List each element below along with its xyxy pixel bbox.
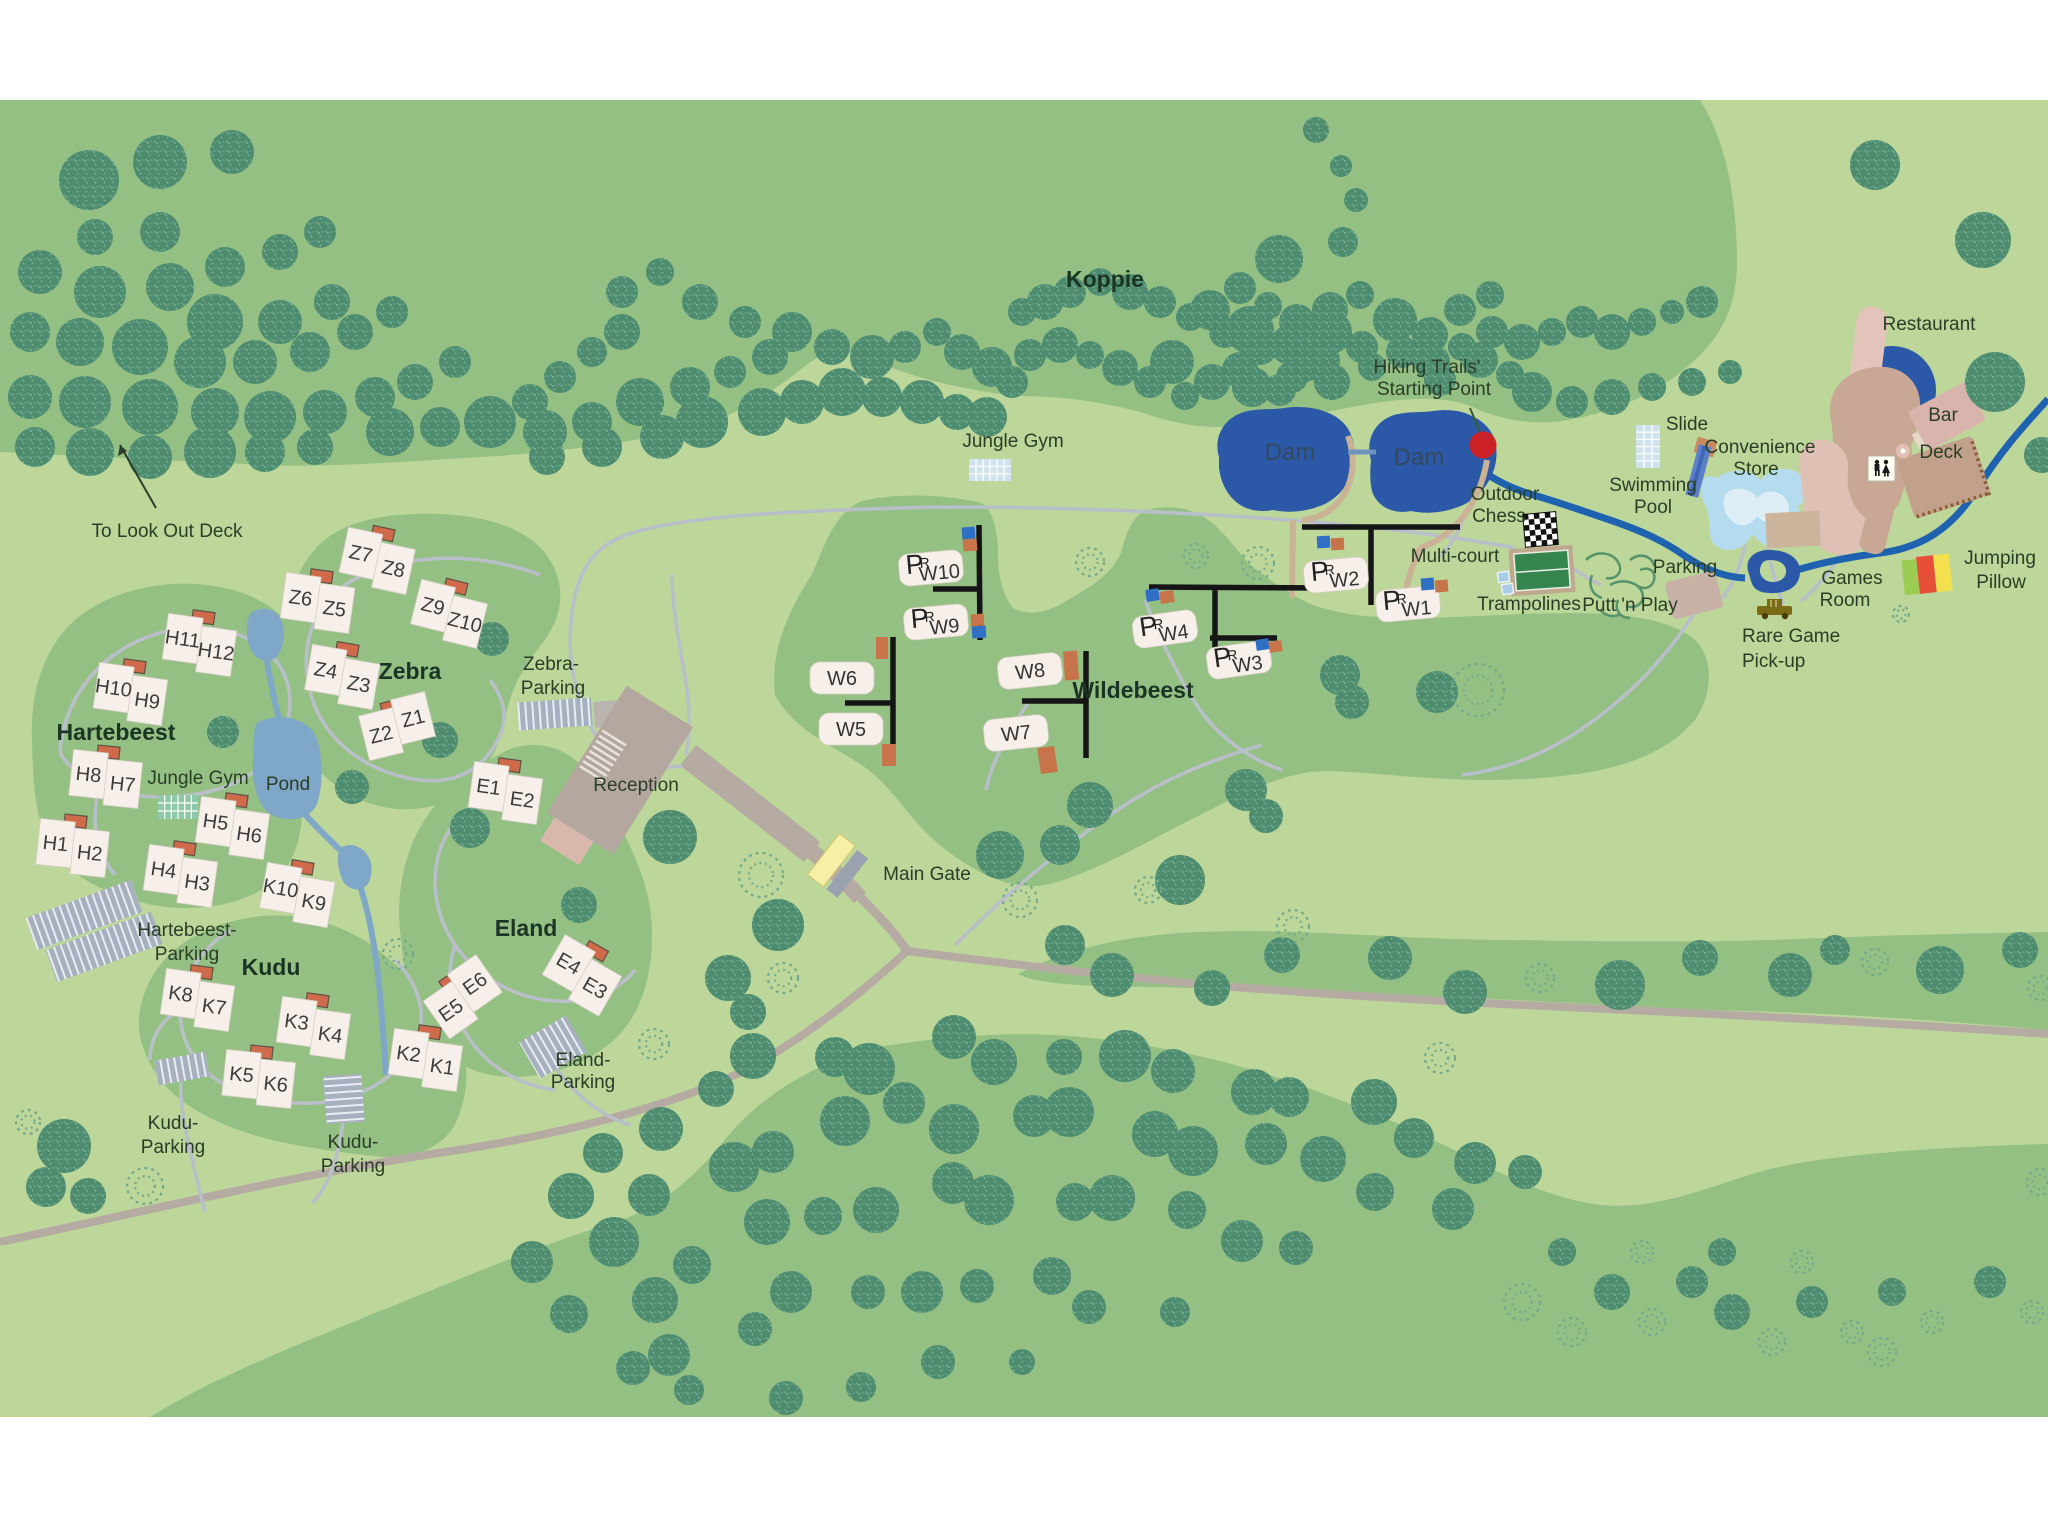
svg-text:K5: K5 (228, 1063, 255, 1087)
svg-text:H6: H6 (235, 823, 263, 848)
svg-text:Z6: Z6 (287, 586, 313, 611)
svg-text:K2: K2 (395, 1042, 422, 1067)
svg-text:H9: H9 (133, 689, 161, 714)
svg-text:H4: H4 (149, 858, 177, 883)
svg-text:Pool: Pool (1634, 497, 1672, 518)
svg-text:Parking: Parking (521, 678, 585, 699)
svg-text:Parking: Parking (141, 1137, 205, 1158)
svg-text:Outdoor: Outdoor (1471, 484, 1540, 505)
svg-text:Starting Point: Starting Point (1377, 379, 1492, 400)
svg-text:Z5: Z5 (321, 597, 347, 622)
svg-text:Zebra: Zebra (379, 658, 442, 684)
svg-text:Convenience: Convenience (1705, 437, 1816, 458)
svg-text:H8: H8 (75, 763, 103, 788)
svg-text:Parking: Parking (155, 944, 219, 965)
svg-text:H3: H3 (183, 871, 211, 896)
svg-text:Restaurant: Restaurant (1883, 314, 1977, 335)
svg-text:W3: W3 (1231, 652, 1264, 678)
svg-text:Hartebeest-: Hartebeest- (137, 920, 236, 941)
svg-text:Main Gate: Main Gate (883, 864, 971, 885)
svg-text:W5: W5 (836, 719, 866, 741)
svg-text:Swimming: Swimming (1609, 475, 1697, 496)
svg-text:Deck: Deck (1919, 442, 1963, 463)
svg-text:K1: K1 (428, 1055, 455, 1080)
svg-text:E2: E2 (508, 788, 535, 813)
svg-text:Reception: Reception (593, 775, 679, 796)
svg-text:Room: Room (1820, 590, 1871, 611)
svg-text:Parking: Parking (551, 1072, 615, 1093)
svg-text:Multi-court: Multi-court (1411, 546, 1500, 567)
svg-text:To Look Out Deck: To Look Out Deck (91, 521, 243, 542)
svg-text:K3: K3 (283, 1010, 310, 1035)
svg-text:Pick-up: Pick-up (1742, 651, 1805, 672)
svg-text:W2: W2 (1329, 568, 1361, 593)
svg-text:Chess: Chess (1472, 506, 1526, 527)
svg-text:Zebra-: Zebra- (523, 654, 579, 675)
svg-text:Putt 'n Play: Putt 'n Play (1582, 595, 1678, 616)
svg-text:W7: W7 (1000, 721, 1032, 746)
svg-text:Slide: Slide (1666, 414, 1708, 435)
svg-text:Eland: Eland (495, 915, 558, 941)
svg-text:Jungle Gym: Jungle Gym (962, 431, 1063, 452)
svg-text:Z3: Z3 (345, 672, 372, 698)
svg-text:Jumping: Jumping (1964, 548, 2036, 569)
svg-text:Kudu: Kudu (242, 954, 301, 980)
svg-text:Jungle Gym: Jungle Gym (147, 768, 248, 789)
svg-text:Wildebeest: Wildebeest (1072, 677, 1194, 703)
svg-text:H7: H7 (109, 773, 137, 798)
svg-text:W4: W4 (1157, 621, 1190, 647)
svg-text:W1: W1 (1401, 597, 1433, 622)
svg-text:Games: Games (1821, 568, 1882, 589)
svg-text:H1: H1 (42, 832, 70, 857)
svg-text:K8: K8 (167, 982, 194, 1007)
svg-text:H5: H5 (201, 810, 229, 835)
svg-text:Bar: Bar (1928, 405, 1958, 426)
svg-text:Parking: Parking (321, 1156, 385, 1177)
svg-text:W8: W8 (1014, 659, 1046, 684)
svg-text:Pond: Pond (266, 774, 310, 795)
svg-text:W9: W9 (929, 615, 961, 640)
svg-text:E1: E1 (475, 775, 502, 800)
svg-text:W6: W6 (827, 668, 857, 690)
svg-text:K6: K6 (262, 1073, 289, 1097)
svg-text:H2: H2 (76, 842, 104, 867)
svg-text:Rare Game: Rare Game (1742, 626, 1840, 647)
svg-text:Koppie: Koppie (1066, 266, 1144, 292)
svg-text:Hartebeest: Hartebeest (57, 719, 176, 745)
svg-text:K4: K4 (316, 1023, 343, 1048)
svg-text:Parking: Parking (1653, 557, 1717, 578)
svg-text:Dam: Dam (1265, 439, 1316, 466)
svg-text:Eland-: Eland- (556, 1050, 611, 1071)
svg-text:Trampolines: Trampolines (1477, 594, 1581, 615)
svg-text:Hiking Trails': Hiking Trails' (1373, 357, 1480, 378)
svg-text:K9: K9 (300, 890, 328, 916)
svg-text:Pillow: Pillow (1976, 572, 2026, 593)
svg-text:K7: K7 (200, 995, 227, 1020)
svg-text:Kudu-: Kudu- (148, 1113, 199, 1134)
svg-text:Z4: Z4 (312, 658, 339, 684)
svg-text:Store: Store (1733, 459, 1778, 480)
svg-text:Kudu-: Kudu- (328, 1132, 379, 1153)
svg-text:W10: W10 (918, 561, 961, 587)
svg-text:Dam: Dam (1394, 444, 1445, 471)
